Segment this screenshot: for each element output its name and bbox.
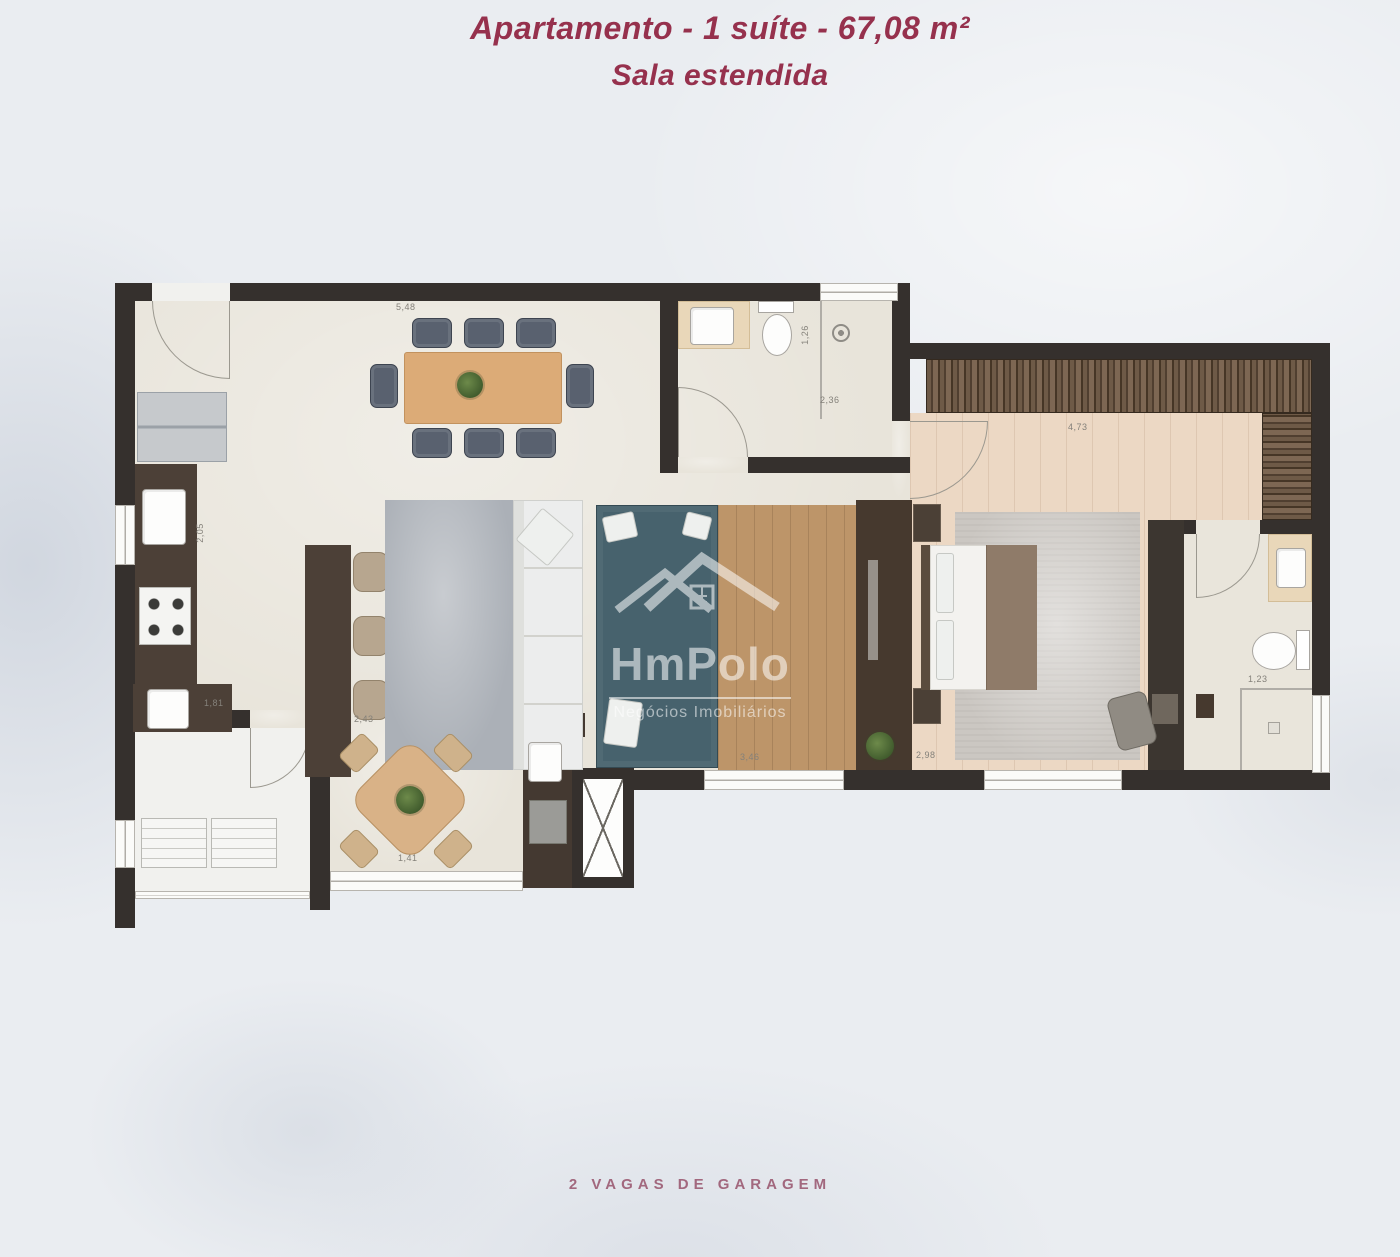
- ensuite-sink: [1276, 548, 1306, 588]
- bathroom-window: [820, 283, 898, 301]
- garage-note: 2 VAGAS DE GARAGEM: [569, 1176, 831, 1193]
- duct-shaft: [580, 776, 626, 880]
- dimension-label: 3,46: [740, 752, 760, 762]
- ensuite-shower-divider: [1240, 688, 1242, 770]
- stove: [139, 587, 191, 645]
- bath-doorway-floor: [678, 457, 748, 473]
- nightstand: [913, 504, 941, 542]
- floorplan-page: Apartamento - 1 suíte - 67,08 m² Sala es…: [0, 0, 1400, 1257]
- brand-roof-icon: [595, 544, 805, 636]
- cabinet-sink: [528, 742, 562, 782]
- dining-chair: [412, 428, 452, 458]
- wall: [910, 343, 1330, 359]
- fridge: [137, 392, 227, 462]
- suite-window: [984, 770, 1122, 790]
- toilet: [762, 314, 792, 356]
- washer: [141, 818, 207, 868]
- ensuite-cabinet: [1196, 694, 1214, 718]
- dining-chair: [412, 318, 452, 348]
- tv-panel-wall: [856, 500, 912, 770]
- watermark-logo: HmPolo Negócios Imobiliários: [550, 544, 850, 722]
- wall: [230, 710, 250, 728]
- kitchen-sink: [142, 489, 186, 545]
- brand-tagline: Negócios Imobiliários: [550, 704, 850, 722]
- bed-pillow: [936, 553, 954, 613]
- bar-stool: [353, 552, 389, 592]
- wall: [748, 457, 910, 473]
- kitchen-island: [305, 545, 351, 777]
- bar-stool: [353, 616, 389, 656]
- ensuite-window: [1312, 695, 1330, 773]
- balcony-plant: [396, 786, 424, 814]
- shower-drain: [1268, 722, 1280, 734]
- dimension-label: 2,36: [820, 395, 840, 405]
- closet-shelf: [1152, 694, 1178, 724]
- table-plant: [457, 372, 483, 398]
- ensuite-toilet-tank: [1296, 630, 1310, 670]
- ensuite-shower-divider: [1240, 688, 1312, 690]
- dining-chair: [516, 428, 556, 458]
- entry-doorway-floor: [152, 283, 230, 301]
- laundry-glass: [135, 891, 310, 899]
- dining-chair: [464, 318, 504, 348]
- dimension-label: 4,73: [1068, 422, 1088, 432]
- dryer: [211, 818, 277, 868]
- dining-chair: [516, 318, 556, 348]
- ensuite-toilet: [1252, 632, 1296, 670]
- wall: [1122, 770, 1330, 790]
- wall: [230, 283, 820, 301]
- footer: 2 VAGAS DE GARAGEM: [0, 1176, 1400, 1194]
- dimension-label: 1,81: [204, 698, 224, 708]
- dimension-label: 2,98: [916, 750, 936, 760]
- wardrobe: [926, 359, 1312, 413]
- bathroom-sink: [690, 307, 734, 345]
- laundry-window: [115, 820, 135, 868]
- dimension-label: 1,26: [800, 325, 810, 345]
- shower-head: [832, 324, 850, 342]
- wall: [1312, 343, 1330, 695]
- dining-table: [404, 352, 562, 424]
- dimension-label: 5,48: [396, 302, 416, 312]
- plant: [866, 732, 894, 760]
- wall: [660, 457, 678, 473]
- kitchen-window: [115, 505, 135, 565]
- wall: [1260, 520, 1312, 534]
- bed-blanket: [986, 545, 1037, 690]
- living-window: [704, 770, 844, 790]
- living-rug: [385, 500, 515, 770]
- wall: [115, 565, 135, 820]
- dimension-label: 2,05: [195, 523, 205, 543]
- tv: [868, 560, 878, 660]
- wardrobe: [1262, 413, 1312, 520]
- toilet-tank: [758, 301, 794, 313]
- wall: [660, 283, 678, 473]
- wall: [115, 868, 135, 928]
- wall: [844, 770, 984, 790]
- wall: [1184, 520, 1196, 534]
- bed-pillow: [936, 620, 954, 680]
- laundry-doorway-floor: [250, 710, 310, 728]
- headboard: [921, 545, 930, 690]
- laundry-sink: [147, 689, 189, 729]
- cabinet-appliance: [529, 800, 567, 844]
- nightstand: [913, 688, 941, 724]
- dimension-label: 1,23: [1248, 674, 1268, 684]
- wall: [892, 283, 910, 421]
- dimension-label: 1,41: [398, 853, 418, 863]
- ensuite-doorway-floor: [1196, 520, 1260, 534]
- brand-divider: [609, 697, 791, 699]
- wall: [115, 283, 135, 505]
- dining-chair: [566, 364, 594, 408]
- brand-name: HmPolo: [550, 637, 850, 691]
- dining-chair: [370, 364, 398, 408]
- dimension-label: 2,43: [354, 714, 374, 724]
- dining-chair: [464, 428, 504, 458]
- balcony-railing: [330, 871, 523, 891]
